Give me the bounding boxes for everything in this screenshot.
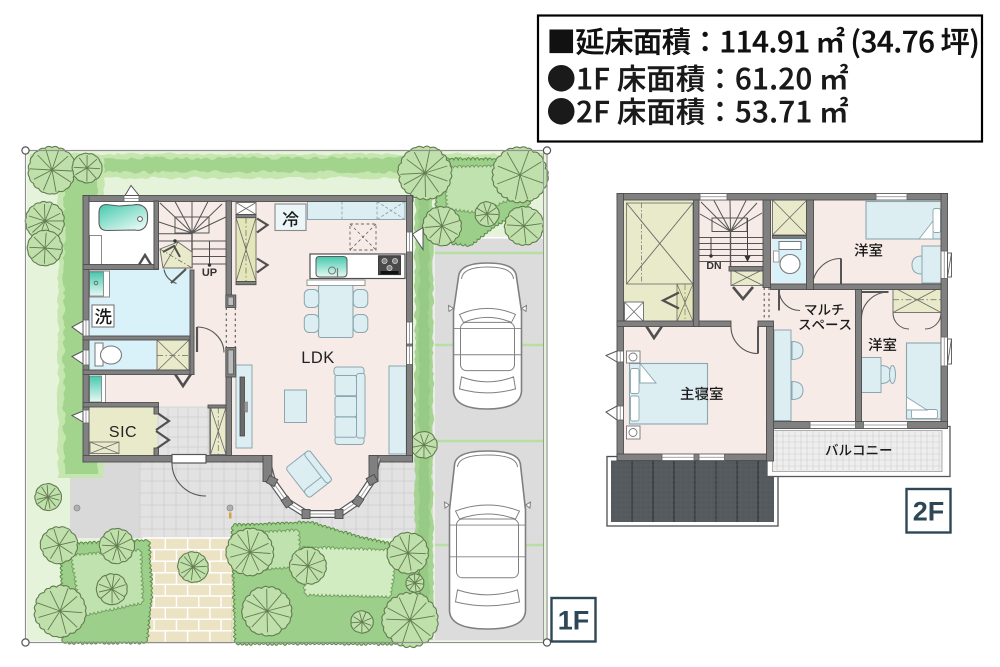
- svg-text:1F: 1F: [558, 606, 590, 636]
- svg-text:SIC: SIC: [109, 424, 137, 441]
- svg-text:DN: DN: [706, 260, 721, 272]
- svg-text:UP: UP: [202, 267, 217, 279]
- svg-text:2F: 2F: [913, 497, 945, 527]
- svg-text:LDK: LDK: [301, 349, 335, 367]
